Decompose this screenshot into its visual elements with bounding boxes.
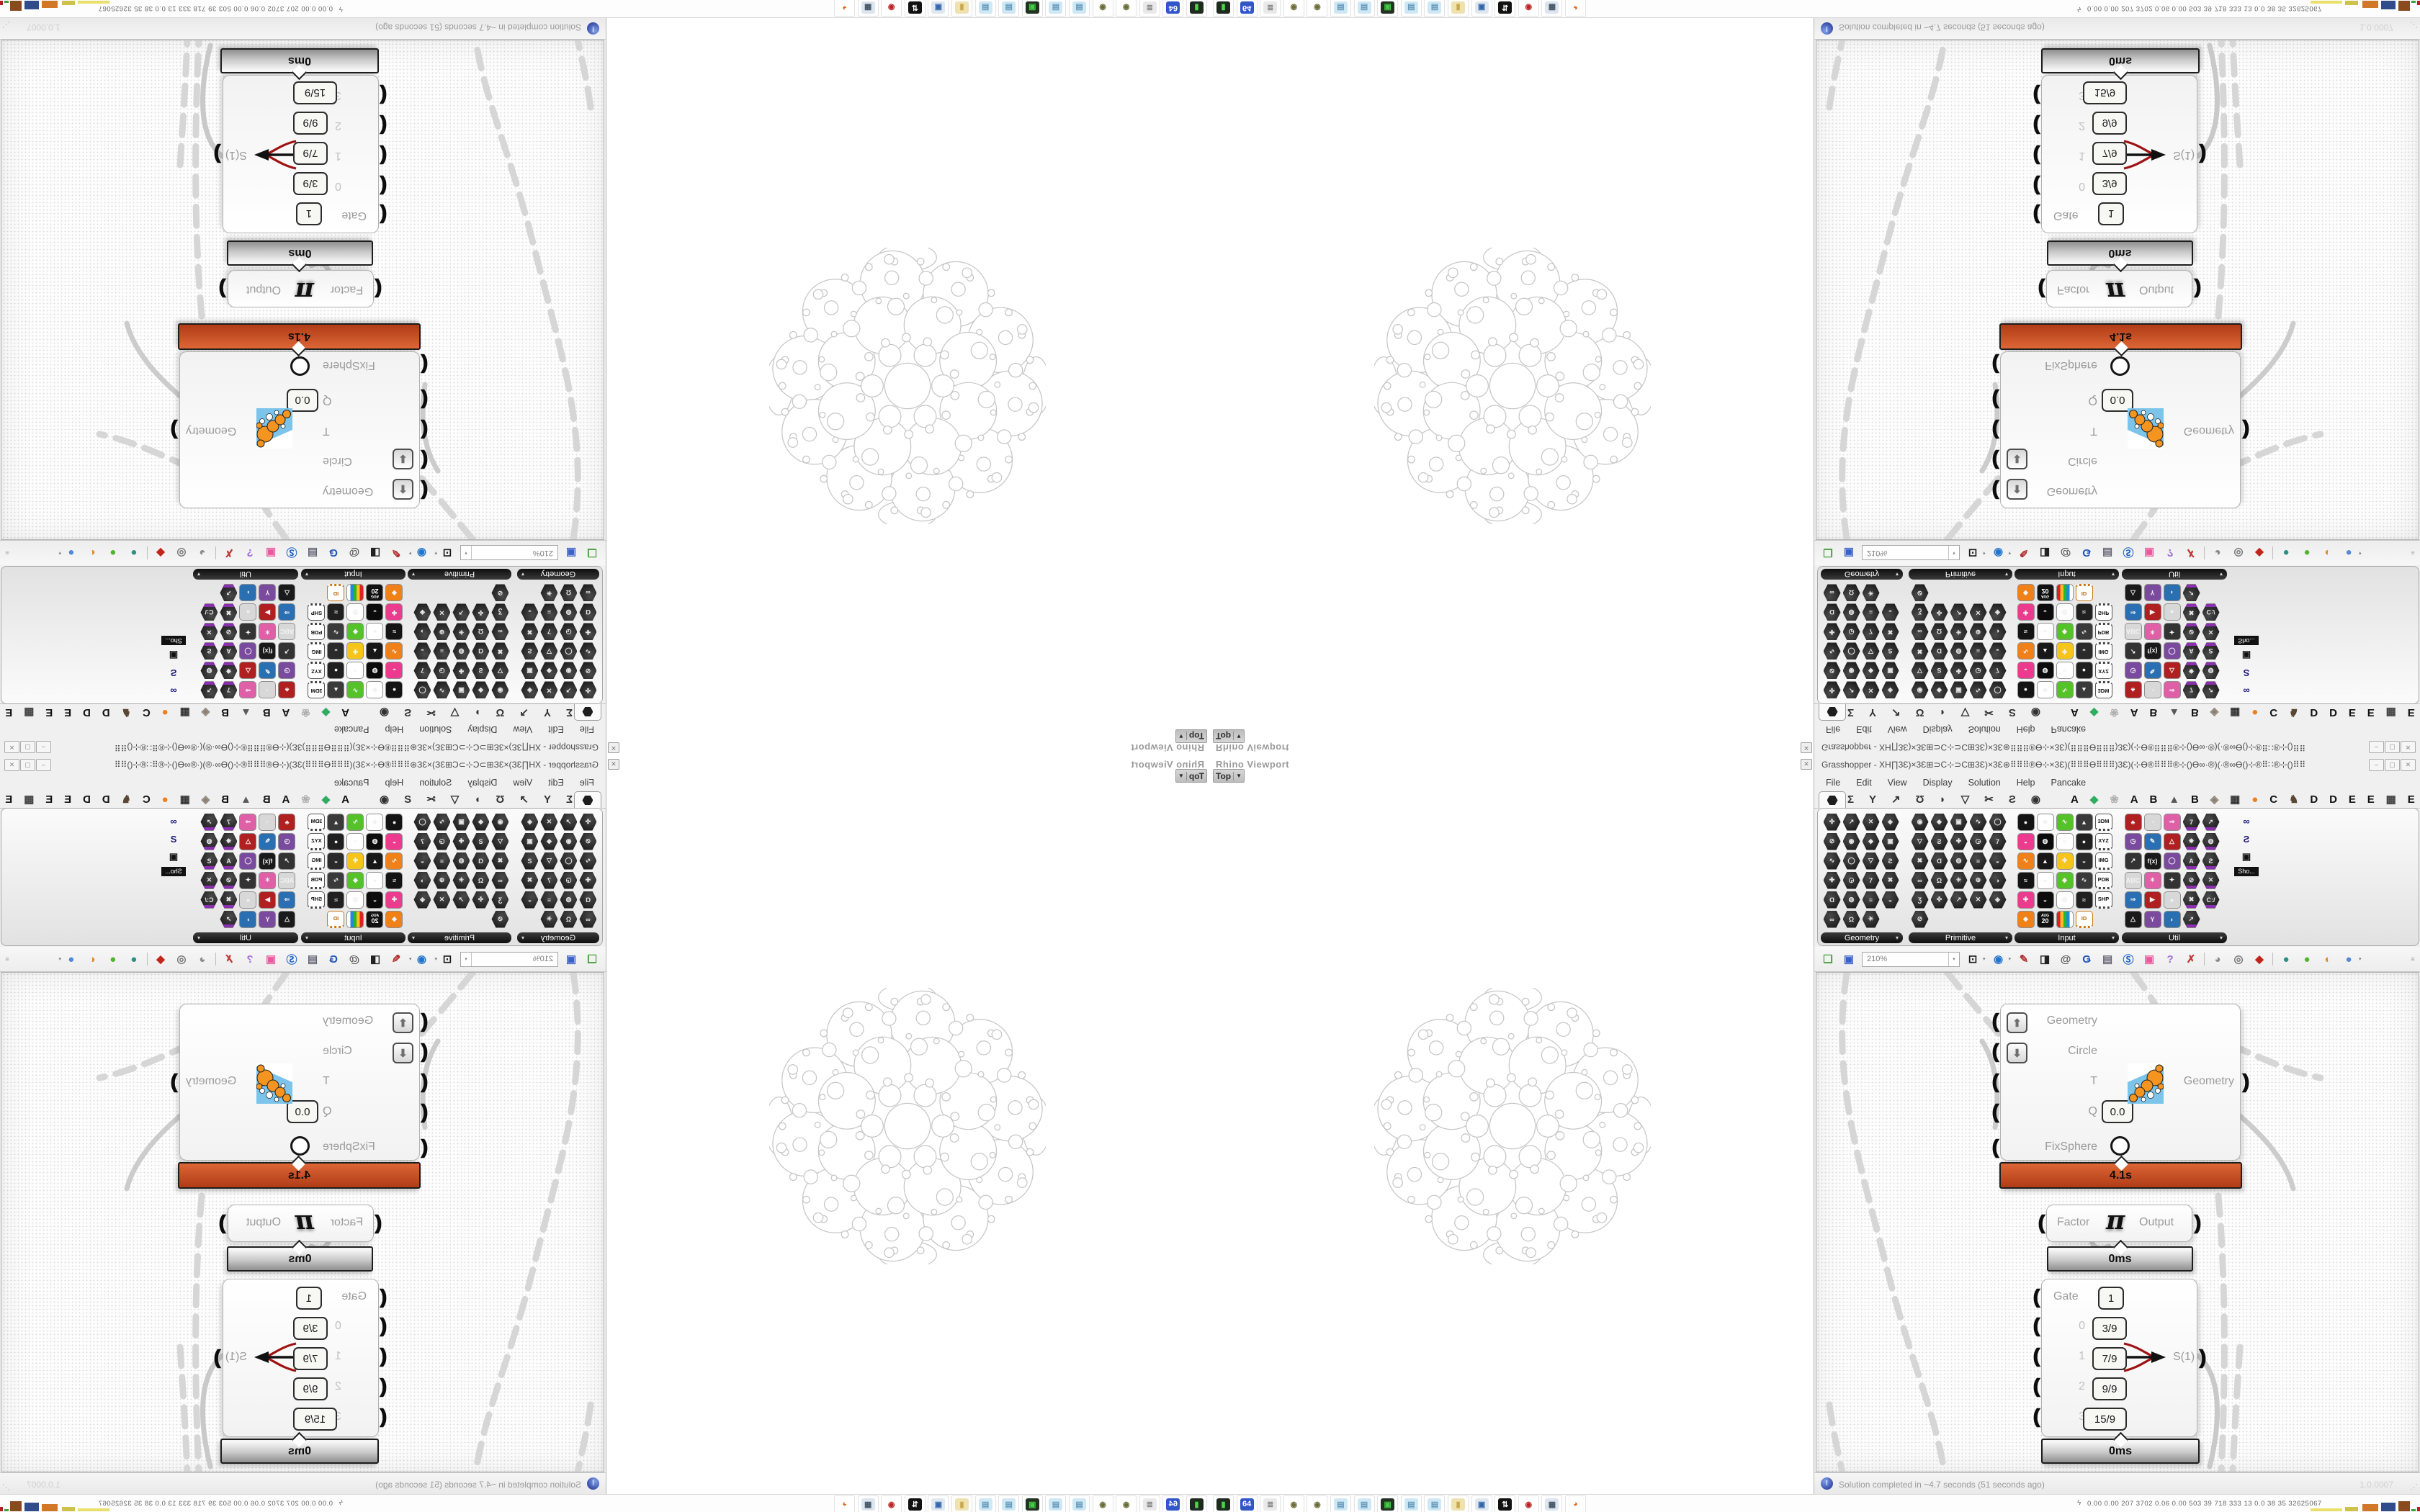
plugin-tab-5[interactable]: ▲: [241, 793, 251, 806]
component-icon[interactable]: ◆: [541, 662, 558, 680]
node-pi[interactable]: ( Factor π Output ): [2046, 270, 2192, 307]
script-editor-button[interactable]: ▤: [2099, 951, 2115, 967]
taskbar-icon-notepad-d[interactable]: ▤: [1424, 1495, 1445, 1512]
taskbar-icon-console[interactable]: ▮: [1186, 0, 1207, 17]
taskbar-icon-workstation[interactable]: ▣: [928, 1495, 949, 1512]
plugin-tab-4[interactable]: B: [263, 793, 271, 806]
input-socket[interactable]: (: [1992, 1140, 1999, 1154]
component-icon[interactable]: ◒: [2017, 833, 2035, 850]
taskbar-icon-scroll-document[interactable]: ≣: [1260, 0, 1281, 17]
panel-label-input[interactable]: Input▾: [2015, 569, 2119, 580]
menu-item-edit[interactable]: Edit: [1856, 778, 1872, 788]
plugin-tab-6[interactable]: B: [221, 707, 229, 719]
component-icon[interactable]: ◆: [472, 682, 490, 699]
component-icon[interactable]: ✳: [453, 624, 470, 641]
plugin-tab-10[interactable]: C: [143, 793, 151, 806]
plugin-tab-14[interactable]: E: [64, 707, 71, 719]
chevron-down-icon[interactable]: ▾: [1948, 546, 1959, 560]
component-icon[interactable]: 3DM: [308, 814, 326, 831]
component-icon[interactable]: ✚: [1824, 624, 1841, 641]
component-icon[interactable]: Ʒ: [1912, 604, 1929, 621]
component-icon[interactable]: ◷: [2125, 662, 2142, 680]
extrude-preview-button[interactable]: ◨: [367, 545, 383, 561]
plugin-tab-8[interactable]: ▦: [180, 793, 190, 806]
component-icon[interactable]: ◆: [367, 814, 384, 831]
chevron-down-icon[interactable]: ▾: [461, 546, 472, 560]
component-icon[interactable]: ◑: [1989, 872, 2007, 889]
component-icon[interactable]: ◶: [434, 662, 451, 680]
selection-ball-green[interactable]: ●: [2299, 951, 2315, 967]
component-icon[interactable]: ↗: [1843, 814, 1860, 831]
panel-label-geometry[interactable]: Geometry▾: [1821, 569, 1903, 580]
tab-params[interactable]: [1819, 703, 1846, 721]
component-icon[interactable]: ≡: [434, 852, 451, 870]
component-icon[interactable]: ≈: [2076, 891, 2093, 909]
component-icon[interactable]: ♣: [279, 682, 296, 699]
component-icon[interactable]: ◒: [1882, 891, 1899, 909]
toolbar-overflow-button[interactable]: ≡: [4, 545, 11, 561]
component-icon[interactable]: Ɑ: [580, 891, 597, 909]
maximize-button[interactable]: ▢: [20, 741, 35, 753]
component-icon[interactable]: ◍: [453, 643, 470, 660]
selection-ball-green[interactable]: ●: [105, 951, 121, 967]
input-socket[interactable]: (: [1992, 484, 1999, 498]
component-icon[interactable]: ◉: [1843, 662, 1860, 680]
component-icon[interactable]: ●: [367, 624, 384, 641]
component-icon[interactable]: ◯: [1843, 643, 1860, 660]
component-icon[interactable]: ▽: [541, 852, 558, 870]
component-icon[interactable]: C:/: [2202, 891, 2220, 909]
component-icon[interactable]: △: [240, 833, 257, 850]
component-icon[interactable]: ∞: [492, 872, 509, 889]
component-icon[interactable]: ◒: [328, 852, 345, 870]
component-icon[interactable]: PDB: [2095, 872, 2112, 889]
taskbar-icon-firefox[interactable]: ◕: [834, 0, 855, 17]
gate-row-value-field[interactable]: 9/9: [2092, 1377, 2127, 1400]
component-icon[interactable]: ✕: [201, 624, 218, 641]
panel-label-util[interactable]: Util▾: [2122, 932, 2227, 943]
close-button[interactable]: ✕: [2401, 741, 2416, 753]
component-icon[interactable]: ▽: [492, 662, 509, 680]
chevron-down-icon[interactable]: ▾: [58, 956, 61, 962]
plugin-tab-15[interactable]: E: [2367, 707, 2375, 719]
preview-gem-button[interactable]: ◆: [153, 951, 169, 967]
toolbar-overflow-button[interactable]: ≡: [2409, 951, 2416, 967]
menu-item-solution[interactable]: Solution: [419, 725, 452, 735]
component-icon[interactable]: XYZ: [2095, 662, 2112, 680]
component-icon[interactable]: ✚: [453, 662, 470, 680]
component-icon[interactable]: ✦: [2164, 624, 2181, 641]
component-icon[interactable]: 7: [2183, 682, 2200, 699]
save-file-button[interactable]: ▣: [563, 545, 579, 561]
component-icon[interactable]: ≈: [386, 624, 403, 641]
component-icon[interactable]: ↗: [1843, 682, 1860, 699]
component-icon[interactable]: ∿: [2076, 624, 2093, 641]
component-icon[interactable]: ◆: [2056, 872, 2074, 889]
gate-row-value-field[interactable]: 7/9: [293, 142, 328, 165]
component-icon[interactable]: ◒: [2037, 604, 2054, 621]
component-icon[interactable]: ≡: [1863, 604, 1880, 621]
node-pi[interactable]: ( Factor π Output ): [228, 270, 374, 307]
component-icon[interactable]: ≡: [541, 604, 558, 621]
component-icon[interactable]: ✚: [386, 891, 403, 909]
component-icon[interactable]: ●: [2017, 814, 2035, 831]
component-icon[interactable]: ◶: [1970, 662, 1987, 680]
plugin-tab-1[interactable]: ◆: [2090, 706, 2099, 719]
category-tab-icon-0[interactable]: Σ: [566, 793, 573, 806]
feedback-at-button[interactable]: @: [346, 951, 362, 967]
gh-canvas[interactable]: ( ( ( ( ( ⬆ ⬇ Geometry Circle T Q FixSph…: [1816, 40, 2419, 540]
plugin-tab-17[interactable]: E: [2408, 793, 2415, 806]
component-icon[interactable]: Ω: [1843, 911, 1860, 928]
component-icon[interactable]: ◈: [414, 891, 431, 909]
component-icon[interactable]: PDB: [2095, 624, 2112, 641]
panel-label-primitive[interactable]: Primitive▾: [408, 569, 511, 580]
component-icon[interactable]: 7: [1989, 833, 2007, 850]
preview-shaded-button[interactable]: ◕: [194, 545, 210, 561]
component-icon[interactable]: ✖: [521, 624, 539, 641]
component-icon[interactable]: ✶: [259, 872, 277, 889]
component-icon[interactable]: ◈: [1882, 682, 1899, 699]
input-socket[interactable]: (: [1992, 358, 1999, 372]
component-icon[interactable]: Ƨ: [201, 643, 218, 660]
window-titlebar[interactable]: Grasshopper - XH∏3Ɛ)×3Ɛ⊞⊃C⊹⊃C⊞3Ɛ)×3Ɛ⊛⠿⠿⠿…: [0, 756, 606, 774]
component-icon[interactable]: ▽: [1912, 833, 1929, 850]
taskbar-icon-workstation[interactable]: ▣: [1471, 0, 1492, 17]
component-icon[interactable]: ✸: [220, 662, 238, 680]
component-icon[interactable]: ◒: [1989, 643, 2007, 660]
node-pi[interactable]: ( Factor π Output ): [2046, 1205, 2192, 1242]
category-tab-icon-3[interactable]: Ʊ: [496, 793, 504, 806]
component-icon[interactable]: ▲: [328, 814, 345, 831]
plugin-tab-5[interactable]: ▲: [2169, 793, 2179, 806]
component-icon[interactable]: ◆: [541, 833, 558, 850]
component-icon[interactable]: IMG: [2095, 852, 2112, 870]
input-socket[interactable]: (: [380, 149, 387, 163]
component-icon[interactable]: Ɑ: [1824, 891, 1841, 909]
component-icon[interactable]: ✦: [240, 624, 257, 641]
component-icon[interactable]: ≈: [2017, 624, 2035, 641]
component-icon[interactable]: ◑: [414, 624, 431, 641]
taskbar-icon-calculator[interactable]: ▦: [1541, 0, 1562, 17]
plugin-tab-13[interactable]: D: [83, 793, 91, 806]
component-icon[interactable]: ◔: [2144, 682, 2161, 699]
viewport-close-button[interactable]: ✕: [608, 759, 619, 770]
input-socket[interactable]: (: [380, 208, 387, 222]
component-icon[interactable]: ◯: [414, 682, 431, 699]
component-icon[interactable]: △: [279, 585, 296, 602]
component-icon[interactable]: PDB: [308, 872, 326, 889]
panel-overflow-label[interactable]: Sho...: [2234, 636, 2259, 645]
component-icon[interactable]: ◆: [1863, 662, 1880, 680]
wire-display-button[interactable]: ✗: [221, 545, 237, 561]
component-icon[interactable]: ✖: [1912, 643, 1929, 660]
component-icon[interactable]: ⊘: [220, 872, 238, 889]
circle-pick-button[interactable]: ⬇: [2007, 449, 2027, 469]
taskbar-icon-notepad-a[interactable]: ▤: [1069, 1495, 1090, 1512]
component-icon[interactable]: Ω: [560, 585, 578, 602]
input-socket[interactable]: (: [375, 282, 382, 297]
resize-grip[interactable]: ⋰: [2410, 1482, 2418, 1492]
component-icon[interactable]: ✸: [220, 833, 238, 850]
save-file-button[interactable]: ▣: [563, 951, 579, 967]
taskbar-icon-scroll-document[interactable]: ≣: [1139, 1495, 1160, 1512]
component-icon[interactable]: ∿: [328, 624, 345, 641]
component-icon[interactable]: ◆: [1931, 682, 1948, 699]
plugin-tab-13[interactable]: D: [2329, 707, 2337, 719]
taskbar-icon-coin-b[interactable]: ◉: [1093, 1495, 1113, 1512]
input-socket[interactable]: (: [380, 1290, 387, 1304]
plugin-tab-3[interactable]: A: [2130, 793, 2138, 806]
plugin-tab-9[interactable]: ●: [162, 793, 169, 806]
preview-gem-button[interactable]: ◆: [153, 545, 169, 561]
chevron-down-icon[interactable]: ▾: [409, 956, 412, 962]
menu-item-view[interactable]: View: [513, 725, 532, 735]
component-icon[interactable]: 7: [2183, 814, 2200, 831]
goggles-icon[interactable]: ∞: [2237, 683, 2256, 699]
preview-wire-button[interactable]: ◎: [174, 951, 189, 967]
node-fixsphere[interactable]: ( ( ( ( ( ⬆ ⬇ Geometry Circle T Q FixSph…: [179, 1004, 420, 1161]
taskbar-icon-notepad-c[interactable]: ▤: [1401, 0, 1422, 17]
component-icon[interactable]: ⊘: [2183, 624, 2200, 641]
gha-exchange-button[interactable]: Ǥ: [2079, 545, 2094, 561]
component-icon[interactable]: 7: [414, 833, 431, 850]
open-file-button[interactable]: ❏: [1820, 545, 1836, 561]
goggles2-icon[interactable]: Ƨ: [164, 831, 183, 847]
component-icon[interactable]: ◈: [521, 814, 539, 831]
component-icon[interactable]: ◈: [414, 604, 431, 621]
component-icon[interactable]: ≈: [386, 872, 403, 889]
component-icon[interactable]: ♣: [2125, 814, 2142, 831]
gha-exchange-button[interactable]: Ǥ: [326, 545, 341, 561]
viewport-view-button[interactable]: Top ▼: [1213, 729, 1245, 743]
component-icon[interactable]: IMG: [308, 852, 326, 870]
taskbar-icon-folder[interactable]: ▮: [951, 0, 972, 17]
output-socket[interactable]: ): [2200, 148, 2206, 162]
category-tab-icon-1[interactable]: Y: [1869, 793, 1876, 806]
category-tab-icon-5[interactable]: ▽: [1961, 706, 1970, 719]
component-icon[interactable]: ✚: [2017, 891, 2035, 909]
taskbar-icon-coin-b[interactable]: ◉: [1093, 0, 1113, 17]
board-icon[interactable]: ▣: [164, 647, 183, 663]
plugin-tab-11[interactable]: ♞: [2289, 793, 2298, 806]
gate-row-value-field[interactable]: 15/9: [2083, 81, 2127, 104]
output-socket[interactable]: ): [2200, 1350, 2206, 1364]
menu-item-display[interactable]: Display: [467, 778, 497, 788]
plugin-tab-1[interactable]: ◆: [322, 793, 331, 806]
panel-overflow-label[interactable]: Sho...: [161, 867, 186, 876]
window-titlebar[interactable]: Grasshopper - XH∏3Ɛ)×3Ɛ⊞⊃C⊹⊃C⊞3Ɛ)×3Ɛ⊛⠿⠿⠿…: [0, 738, 606, 756]
taskbar-icon-console[interactable]: ▮: [1186, 1495, 1207, 1512]
component-icon[interactable]: ◆: [386, 911, 403, 928]
taskbar-icon-console[interactable]: ▮: [1213, 1495, 1234, 1512]
component-icon[interactable]: Ɑ: [1931, 643, 1948, 660]
component-icon[interactable]: ◯: [414, 814, 431, 831]
component-icon[interactable]: ↗: [1950, 891, 1968, 909]
component-icon[interactable]: ●: [2076, 662, 2093, 680]
close-button[interactable]: ✕: [2401, 759, 2416, 771]
taskbar-icon-red-badge[interactable]: ◉: [881, 1495, 902, 1512]
taskbar-icon-arrows-bw[interactable]: ⇅: [905, 0, 926, 17]
close-button[interactable]: ✕: [4, 759, 19, 771]
component-icon[interactable]: ●: [240, 604, 257, 621]
component-icon[interactable]: ◗: [240, 911, 257, 928]
component-icon[interactable]: ✕: [1970, 604, 1987, 621]
minimize-button[interactable]: ‒: [36, 741, 51, 753]
component-icon[interactable]: ∞: [492, 624, 509, 641]
taskbar-icon-notepad-d[interactable]: ▤: [975, 1495, 996, 1512]
taskbar-icon-folder[interactable]: ▮: [951, 1495, 972, 1512]
component-icon[interactable]: ≈: [328, 891, 345, 909]
component-icon[interactable]: ◆: [347, 872, 364, 889]
gate-row-value-field[interactable]: 3/9: [2092, 1317, 2127, 1340]
component-icon[interactable]: Ʒ: [1912, 891, 1929, 909]
plugin-tab-0[interactable]: A: [2071, 707, 2079, 719]
component-icon[interactable]: ◍: [201, 833, 218, 850]
component-icon[interactable]: ▽: [541, 643, 558, 660]
input-socket[interactable]: (: [2033, 208, 2040, 222]
component-icon[interactable]: ▶: [259, 891, 277, 909]
script-editor-button[interactable]: ▤: [305, 951, 321, 967]
extrude-preview-button[interactable]: ◨: [2037, 545, 2053, 561]
chevron-down-icon[interactable]: ▾: [58, 550, 61, 556]
fixsphere-toggle[interactable]: [290, 1136, 310, 1156]
component-icon[interactable]: ↗: [279, 852, 296, 870]
component-icon[interactable]: ◒: [367, 604, 384, 621]
component-icon[interactable]: ⊘: [1912, 585, 1929, 602]
taskbar-icon-coin-a[interactable]: ◉: [1116, 1495, 1137, 1512]
selection-ball-blue[interactable]: ●: [2341, 545, 2357, 561]
component-icon[interactable]: C:/: [201, 604, 218, 621]
fixsphere-toggle[interactable]: [2110, 356, 2130, 376]
component-icon[interactable]: ⊘: [1824, 662, 1841, 680]
component-icon[interactable]: ◉: [492, 682, 509, 699]
category-tab-icon-5[interactable]: ▽: [451, 793, 460, 806]
component-icon[interactable]: ◯: [240, 852, 257, 870]
menu-item-view[interactable]: View: [513, 778, 532, 788]
gate-row-value-field[interactable]: 9/9: [293, 112, 328, 135]
component-icon[interactable]: ▽: [1863, 643, 1880, 660]
category-tab-icon-4[interactable]: ◗: [474, 793, 480, 806]
taskbar-icon-firefox[interactable]: ◕: [1565, 1495, 1586, 1512]
component-icon[interactable]: ◍: [347, 604, 364, 621]
gate-value-field[interactable]: 1: [2098, 1287, 2124, 1310]
component-icon[interactable]: ◆: [2056, 624, 2074, 641]
component-icon[interactable]: ✳: [453, 872, 470, 889]
component-icon[interactable]: ✖: [2183, 604, 2200, 621]
wire-display-button[interactable]: ✗: [221, 951, 237, 967]
input-socket[interactable]: (: [421, 423, 428, 438]
taskbar-icon-notepad-c[interactable]: ▤: [998, 1495, 1019, 1512]
plugin-tab-2[interactable]: ❀: [301, 706, 310, 719]
component-icon[interactable]: Ɑ: [472, 852, 490, 870]
menu-item-pancake[interactable]: Pancake: [2051, 725, 2086, 735]
plugin-tab-2[interactable]: ❀: [301, 793, 310, 806]
component-icon[interactable]: ✜: [580, 682, 597, 699]
component-icon[interactable]: ▶: [259, 604, 277, 621]
window-titlebar[interactable]: Grasshopper - XH∏3Ɛ)×3Ɛ⊞⊃C⊹⊃C⊞3Ɛ)×3Ɛ⊛⠿⠿⠿…: [1814, 738, 2420, 756]
feedback-at-button[interactable]: @: [2058, 951, 2074, 967]
component-icon[interactable]: ◍: [2056, 604, 2074, 621]
component-icon[interactable]: ✖: [521, 872, 539, 889]
plugin-tab-9[interactable]: ●: [162, 707, 169, 719]
component-icon[interactable]: ◶: [560, 624, 578, 641]
taskbar-icon-notepad-b[interactable]: ▤: [1045, 0, 1066, 17]
input-socket[interactable]: (: [421, 358, 428, 372]
taskbar-icon-floppy-64[interactable]: 64: [1237, 1495, 1258, 1512]
menu-item-display[interactable]: Display: [1923, 778, 1953, 788]
component-icon[interactable]: ▶: [2144, 604, 2161, 621]
plugin-tab-2[interactable]: ❀: [2110, 793, 2119, 806]
input-socket[interactable]: (: [421, 1074, 428, 1089]
category-tab-icon-2[interactable]: ↗: [1891, 793, 1901, 806]
menu-item-help[interactable]: Help: [2017, 725, 2035, 735]
component-icon[interactable]: ◶: [434, 833, 451, 850]
input-socket[interactable]: (: [2033, 1349, 2040, 1363]
component-icon[interactable]: ABC: [2125, 872, 2142, 889]
component-icon[interactable]: ✜: [1931, 891, 1948, 909]
open-file-button[interactable]: ❏: [584, 951, 600, 967]
component-icon[interactable]: ◒: [1989, 852, 2007, 870]
selection-ball-orange[interactable]: ◐: [2320, 951, 2336, 967]
menu-item-solution[interactable]: Solution: [1968, 725, 2001, 735]
plugin-tab-1[interactable]: ◆: [322, 706, 331, 719]
component-icon[interactable]: ⊕: [434, 624, 451, 641]
category-tab-icon-5[interactable]: ▽: [1961, 793, 1970, 806]
category-tab-icon-1[interactable]: Y: [1869, 707, 1876, 719]
component-icon[interactable]: ∞: [580, 911, 597, 928]
preview-shaded-button[interactable]: ◕: [194, 951, 210, 967]
taskbar-icon-red-badge[interactable]: ◉: [881, 0, 902, 17]
component-icon[interactable]: ✚: [1950, 662, 1968, 680]
circle-pick-button[interactable]: ⬇: [2007, 1043, 2027, 1063]
component-icon[interactable]: ▣: [521, 833, 539, 850]
component-icon[interactable]: ➚: [2183, 911, 2200, 928]
component-icon[interactable]: A: [220, 852, 238, 870]
minimize-button[interactable]: ‒: [36, 759, 51, 771]
taskbar-icon-workstation[interactable]: ▣: [928, 0, 949, 17]
component-icon[interactable]: Y: [2144, 585, 2161, 602]
geometry-pick-button[interactable]: ⬆: [2007, 479, 2027, 500]
component-icon[interactable]: ●: [328, 662, 345, 680]
component-icon[interactable]: ✚: [386, 604, 403, 621]
taskbar-icon-notepad-b[interactable]: ▤: [1354, 0, 1375, 17]
input-socket[interactable]: (: [1992, 1104, 1999, 1119]
component-icon[interactable]: SHP: [308, 604, 326, 621]
component-icon[interactable]: f(x): [259, 852, 277, 870]
component-icon[interactable]: ✕: [434, 891, 451, 909]
component-icon[interactable]: △: [2164, 662, 2181, 680]
component-icon[interactable]: ➚: [201, 814, 218, 831]
panel-label-input[interactable]: Input▾: [2015, 932, 2119, 943]
component-icon[interactable]: ⊘: [2183, 872, 2200, 889]
component-icon[interactable]: C:/: [2202, 604, 2220, 621]
component-icon[interactable]: ✕: [201, 872, 218, 889]
plugin-tab-0[interactable]: A: [341, 793, 349, 806]
component-icon[interactable]: ∿: [328, 872, 345, 889]
plugin-tab-12[interactable]: D: [102, 793, 110, 806]
plugin-tab-17[interactable]: E: [2408, 707, 2415, 719]
component-icon[interactable]: ✚: [453, 833, 470, 850]
plugin-tab-17[interactable]: E: [5, 707, 12, 719]
node-stream-gate[interactable]: ( Gate 1 S(1) ) (03/9(17/9(29/9(315/9: [223, 1279, 379, 1437]
minimize-button[interactable]: ‒: [2369, 741, 2384, 753]
category-tab-icon-8[interactable]: ◉: [2031, 793, 2040, 806]
tab-params[interactable]: [1819, 791, 1846, 809]
component-icon[interactable]: ◷: [2125, 833, 2142, 850]
plugin-tab-11[interactable]: ♞: [122, 793, 131, 806]
category-tab-icon-6[interactable]: ✂: [1984, 706, 1994, 719]
